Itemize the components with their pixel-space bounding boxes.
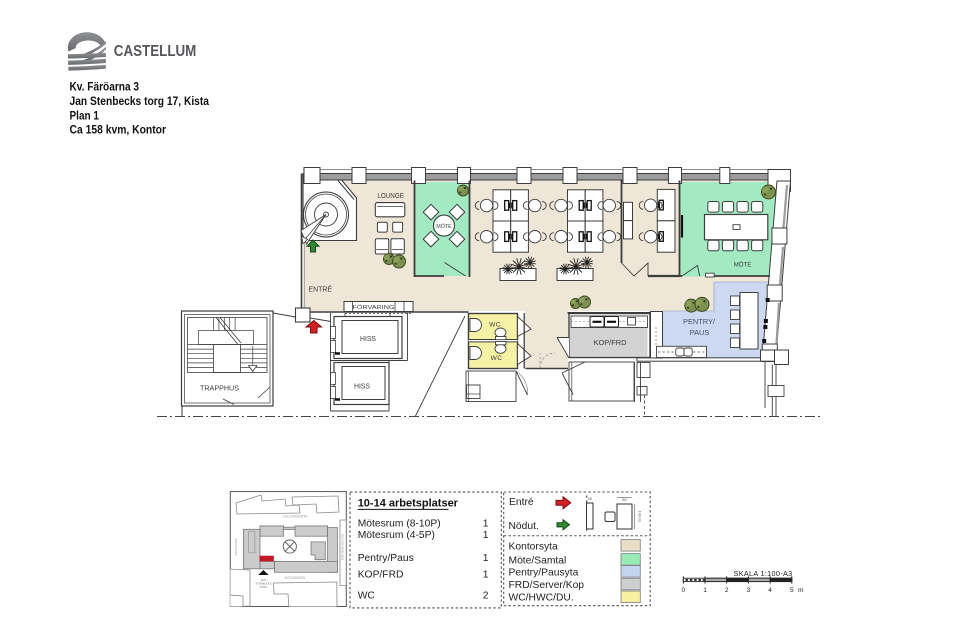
svg-text:CASTELLUM: CASTELLUM [114, 43, 197, 60]
svg-text:KISTAGÅNGEN: KISTAGÅNGEN [285, 575, 306, 580]
svg-text:WC: WC [358, 591, 376, 602]
svg-text:PAUS: PAUS [690, 328, 710, 337]
svg-text:MÖTE: MÖTE [436, 223, 452, 230]
svg-text:Ca 158 kvm, Kontor: Ca 158 kvm, Kontor [70, 123, 167, 137]
svg-text:KISTAGÅNGEN: KISTAGÅNGEN [341, 534, 346, 560]
svg-text:10-14 arbetsplatser: 10-14 arbetsplatser [358, 497, 459, 509]
svg-text:HANSTAVÄGEN: HANSTAVÄGEN [234, 539, 238, 556]
svg-text:TRAPPHUS: TRAPPHUS [200, 384, 239, 393]
svg-text:Kv. Färöarna 3: Kv. Färöarna 3 [70, 80, 140, 94]
svg-text:Jan Stenbecks torg 17, Kista: Jan Stenbecks torg 17, Kista [70, 94, 210, 108]
svg-text:5: 5 [790, 587, 794, 594]
svg-text:Plan 1: Plan 1 [70, 108, 100, 122]
svg-text:GULLFOSSGATAN: GULLFOSSGATAN [283, 514, 309, 518]
svg-text:Pentry/Paus: Pentry/Paus [358, 553, 414, 564]
svg-text:MÖTE: MÖTE [734, 261, 752, 269]
svg-text:Nödut.: Nödut. [509, 521, 539, 532]
svg-text:4: 4 [768, 587, 772, 594]
svg-text:PENTRY/: PENTRY/ [683, 317, 715, 326]
svg-text:1: 1 [483, 553, 489, 564]
svg-text:LOUNGE: LOUNGE [377, 191, 404, 200]
svg-text:FRD/Server/Kop: FRD/Server/Kop [509, 580, 585, 591]
svg-text:KOP/FRD: KOP/FRD [358, 569, 404, 580]
svg-text:0: 0 [681, 587, 685, 594]
svg-text:1: 1 [483, 569, 489, 580]
svg-text:3: 3 [747, 587, 751, 594]
svg-text:Kontorsyta: Kontorsyta [509, 541, 558, 552]
svg-text:Entré: Entré [509, 497, 534, 508]
svg-text:140 cm: 140 cm [638, 511, 642, 523]
svg-text:FÖRVARING: FÖRVARING [353, 304, 395, 311]
svg-text:SKALA 1:100-A3: SKALA 1:100-A3 [734, 569, 793, 578]
svg-text:40: 40 [588, 496, 593, 501]
svg-text:ENTRÉ: ENTRÉ [309, 285, 333, 294]
svg-text:KOP/FRD: KOP/FRD [594, 338, 627, 347]
svg-text:Mötesrum (4-5P): Mötesrum (4-5P) [358, 530, 435, 541]
svg-text:HISS: HISS [354, 382, 370, 391]
svg-text:WC: WC [489, 322, 501, 329]
svg-text:1: 1 [703, 587, 707, 594]
svg-text:Pentry/Pausyta: Pentry/Pausyta [509, 567, 579, 578]
svg-text:TORG: TORG [259, 585, 267, 589]
svg-text:1: 1 [483, 530, 489, 541]
svg-text:2: 2 [483, 591, 489, 602]
svg-text:WC/HWC/DU.: WC/HWC/DU. [509, 593, 574, 604]
svg-text:HISS: HISS [360, 334, 376, 343]
svg-text:WC: WC [491, 355, 503, 362]
svg-text:1: 1 [483, 519, 489, 530]
svg-text:Mötesrum (8-10P): Mötesrum (8-10P) [358, 519, 441, 530]
svg-text:2: 2 [725, 587, 729, 594]
svg-text:m: m [798, 587, 803, 594]
svg-text:Möte/Samtal: Möte/Samtal [509, 555, 567, 566]
